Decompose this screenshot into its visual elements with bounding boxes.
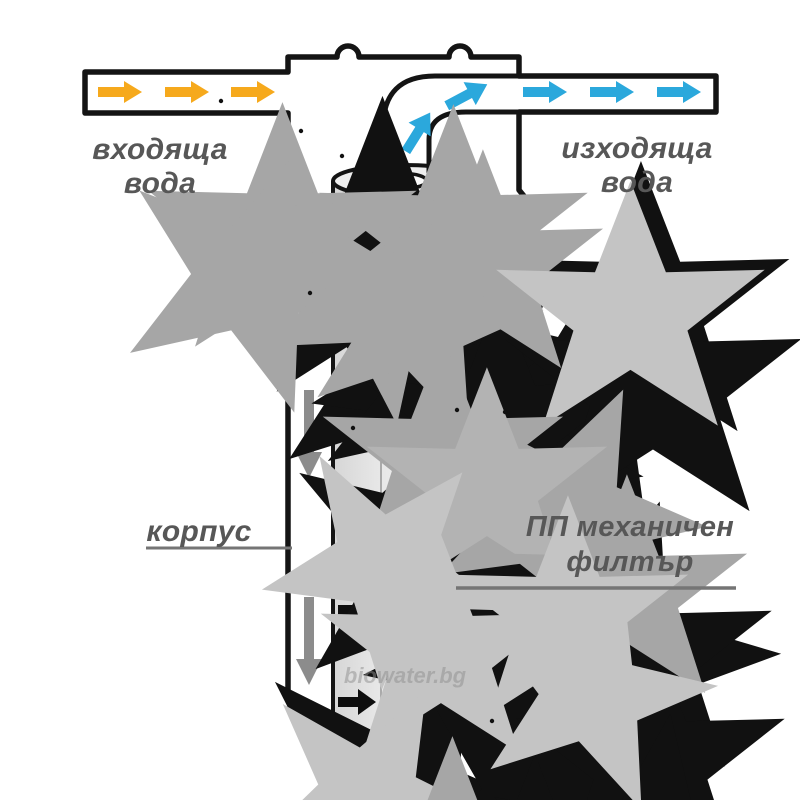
particle-dot <box>219 99 223 103</box>
housing-label: корпус <box>119 515 279 549</box>
filter-label: ПП механичен филтър <box>518 510 742 580</box>
filter-label-line1: ПП механичен <box>518 510 742 545</box>
particle-dot <box>340 154 344 158</box>
particle-dot <box>308 291 312 295</box>
outlet-water-label-line1: изходяща <box>552 132 722 166</box>
watermark: biowater.bg <box>325 663 485 689</box>
filter-label-line2: филтър <box>518 545 742 580</box>
filter-diagram: входяща вода изходяща вода корпус ПП мех… <box>0 0 800 800</box>
outlet-water-label: изходяща вода <box>552 132 722 200</box>
particle-dot <box>299 129 303 133</box>
inlet-water-label-line1: входяща <box>75 133 245 167</box>
inlet-water-label-line2: вода <box>75 167 245 201</box>
particle-dot <box>351 426 355 430</box>
particle-dot <box>503 410 507 414</box>
outlet-water-label-line2: вода <box>552 166 722 200</box>
inlet-water-label: входяща вода <box>75 133 245 201</box>
particle-dot <box>490 719 494 723</box>
particle-dot <box>455 408 459 412</box>
